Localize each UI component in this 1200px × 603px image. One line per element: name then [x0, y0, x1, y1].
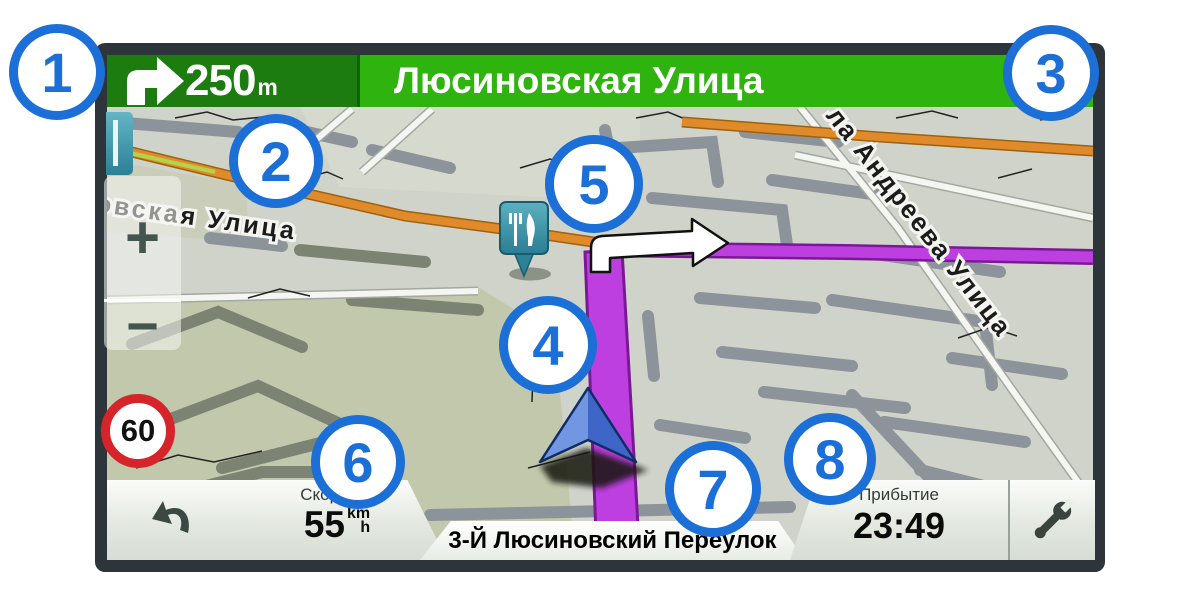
- arrival-time: 23:49: [853, 508, 945, 544]
- next-turn-panel[interactable]: 250m: [107, 55, 360, 107]
- callout-6: 6: [311, 415, 405, 509]
- status-bar: Скорость 55 km h 3-Й Люсиновский Переуло…: [107, 480, 1093, 560]
- zoom-in-button[interactable]: +: [104, 176, 181, 302]
- speed-unit-h: h: [360, 521, 370, 535]
- side-tab-handle[interactable]: [106, 112, 133, 175]
- callout-3: 3: [1003, 25, 1099, 121]
- callout-5: 5: [545, 135, 643, 233]
- back-button[interactable]: [107, 480, 229, 560]
- back-arrow-icon: [144, 497, 190, 543]
- arrival-label: Прибытие: [859, 485, 939, 505]
- next-street-banner[interactable]: Люсиновская Улица: [360, 55, 1093, 107]
- speed-limit-value: 60: [121, 413, 155, 449]
- current-street-plate[interactable]: 3-Й Люсиновский Переулок: [420, 521, 805, 560]
- distance-to-turn: 250m: [185, 56, 277, 106]
- speed-value: 55 km h: [304, 507, 370, 542]
- speed-limit-sign[interactable]: 60: [101, 394, 175, 468]
- callout-7: 7: [665, 441, 761, 537]
- side-tab-grip: [113, 120, 118, 166]
- zoom-out-button[interactable]: −: [104, 302, 181, 350]
- navigation-bar: 250m Люсиновская Улица: [107, 55, 1093, 107]
- wrench-icon: [1027, 494, 1079, 546]
- callout-2: 2: [229, 114, 323, 208]
- next-street-name: Люсиновская Улица: [394, 60, 763, 102]
- turn-right-arrow-icon: [107, 55, 185, 107]
- callout-4: 4: [499, 296, 597, 394]
- zoom-controls: + −: [104, 176, 181, 350]
- tools-button[interactable]: [1008, 480, 1095, 560]
- callout-1: 1: [9, 24, 105, 120]
- callout-8: 8: [784, 413, 876, 505]
